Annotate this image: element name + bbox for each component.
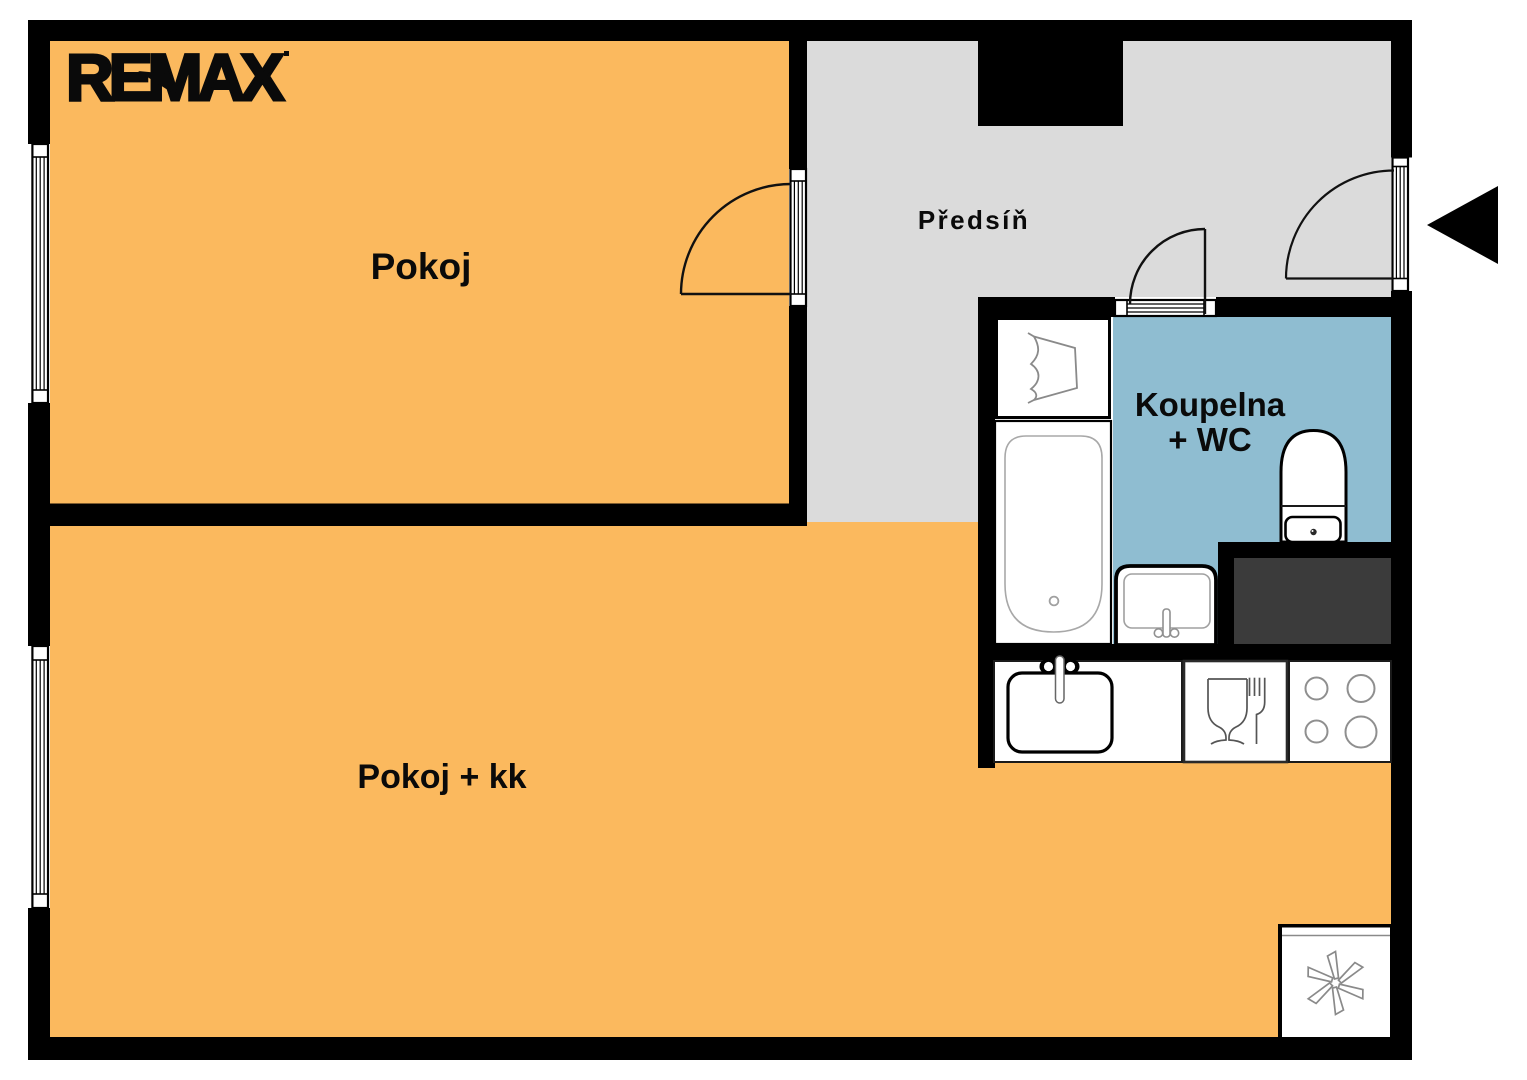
svg-text:Pokoj: Pokoj [371, 246, 472, 287]
svg-text:Předsíň: Předsíň [918, 205, 1030, 235]
svg-text:REMAX: REMAX [66, 40, 284, 114]
svg-text:Pokoj + kk: Pokoj + kk [357, 758, 526, 796]
svg-text:Koupelna: Koupelna [1135, 386, 1286, 423]
svg-text:+ WC: + WC [1168, 421, 1251, 458]
